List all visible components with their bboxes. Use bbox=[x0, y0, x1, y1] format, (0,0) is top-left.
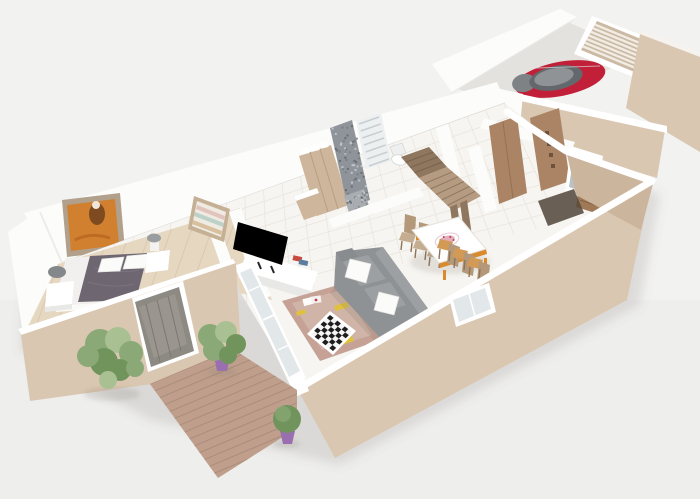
floorplan-svg bbox=[0, 0, 700, 499]
floorplan-render bbox=[0, 0, 700, 499]
lamp-left bbox=[48, 266, 66, 278]
round-bush bbox=[273, 405, 301, 448]
lamp-right bbox=[147, 234, 161, 243]
